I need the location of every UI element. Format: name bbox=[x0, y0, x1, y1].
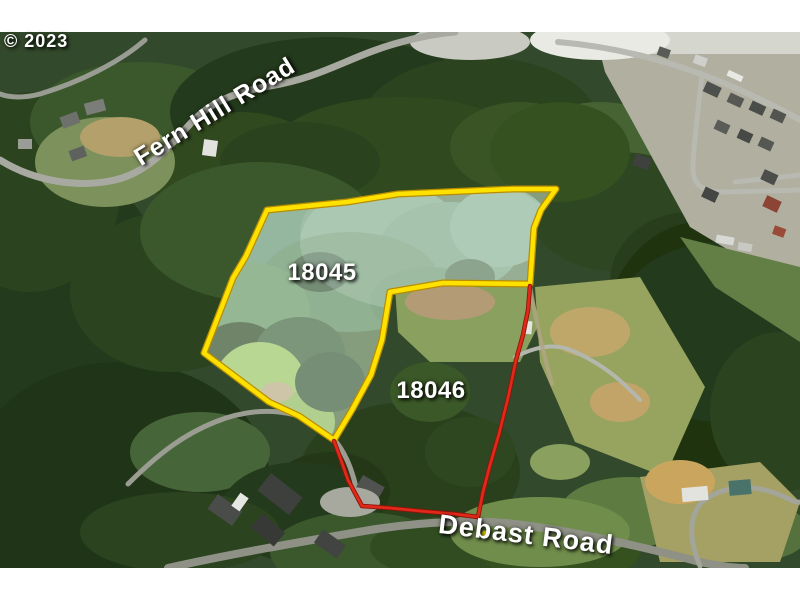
parcel-label-18046: 18046 bbox=[396, 377, 465, 405]
copyright-watermark: © 2023 bbox=[4, 31, 68, 52]
parcel-label-18045: 18045 bbox=[287, 259, 356, 287]
aerial-photo bbox=[0, 32, 800, 568]
parcel-18045-boundary-casing bbox=[204, 189, 556, 440]
parcel-overlay bbox=[0, 32, 800, 568]
aerial-parcel-map: © 2023 Fern Hill Road 18045 18046 Debast… bbox=[0, 0, 800, 600]
